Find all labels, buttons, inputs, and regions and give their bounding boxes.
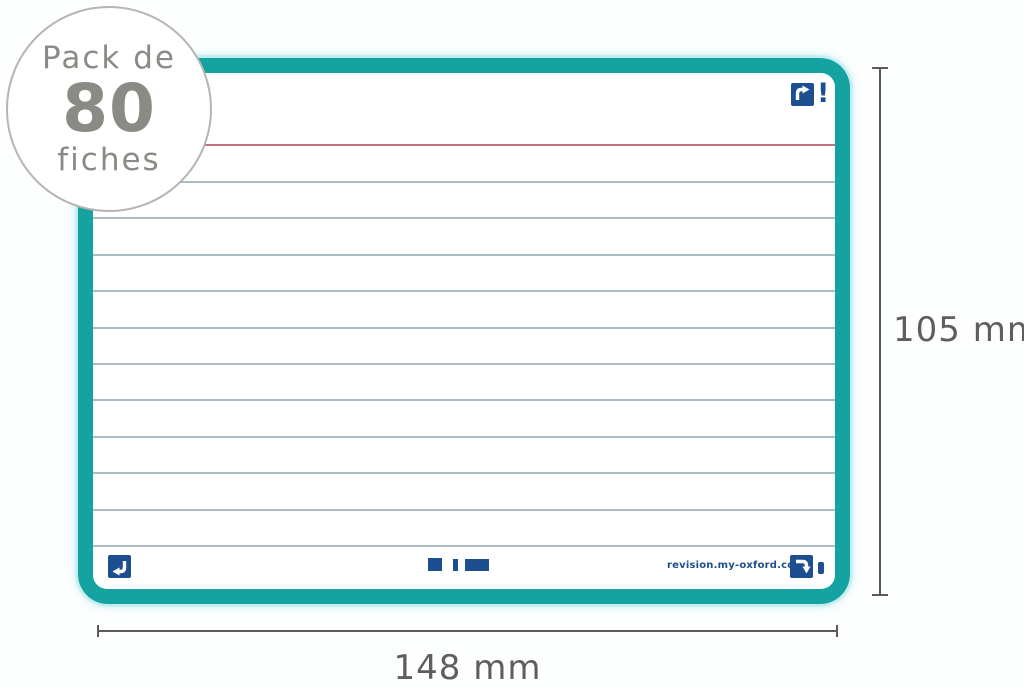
dimension-tick (97, 625, 99, 637)
pack-badge-count: 80 (62, 74, 156, 143)
calibration-mark-dot (453, 559, 458, 571)
height-dimension-line (879, 68, 881, 595)
width-dimension-line (97, 630, 838, 632)
ruled-line (93, 472, 835, 474)
exclamation-dot (818, 562, 824, 574)
ruled-line (93, 363, 835, 365)
ruled-line (93, 327, 835, 329)
flash-card-face: ! revision.my-oxford.com (93, 73, 835, 589)
dimension-tick (836, 625, 838, 637)
dimension-tick (872, 594, 888, 596)
corner-scan-arrow-icon (791, 83, 814, 106)
footer-url: revision.my-oxford.com (667, 560, 805, 571)
ruled-line (93, 217, 835, 219)
ruled-line (93, 399, 835, 401)
exclamation-mark: ! (817, 80, 829, 107)
calibration-mark-square (428, 558, 442, 571)
ruled-line (93, 436, 835, 438)
pack-badge: Pack de 80 fiches (6, 6, 212, 212)
ruled-line (93, 181, 835, 183)
dimension-tick (872, 67, 888, 69)
ruled-line (93, 290, 835, 292)
pack-badge-line3: fiches (57, 144, 160, 177)
corner-scan-arrow-icon (790, 555, 813, 578)
ruled-line (93, 509, 835, 511)
ruled-line (93, 254, 835, 256)
width-dimension-label: 148 mm (97, 648, 838, 688)
ruled-line (93, 545, 835, 547)
height-dimension-label: 105 mm (893, 310, 1024, 350)
calibration-mark-bar (465, 559, 489, 571)
corner-scan-arrow-icon (108, 555, 131, 578)
